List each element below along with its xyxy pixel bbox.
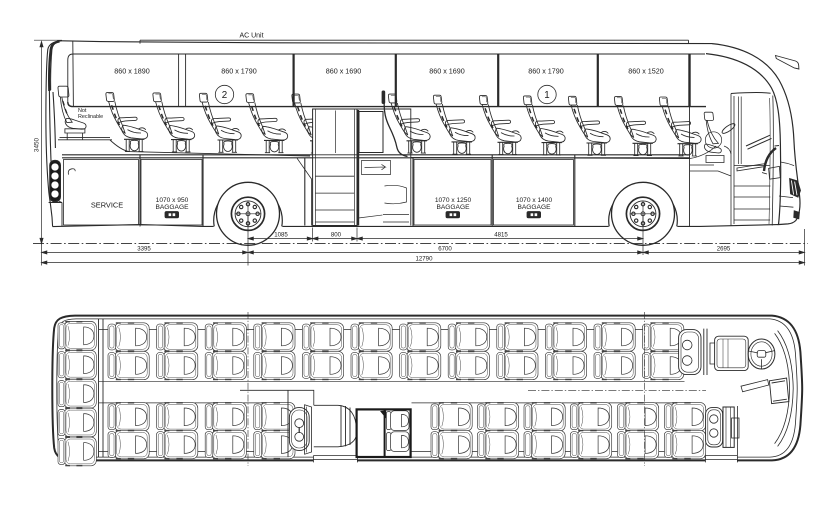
svg-text:860 x 1520: 860 x 1520 [628, 66, 664, 75]
svg-text:3450: 3450 [34, 137, 41, 152]
svg-text:4815: 4815 [494, 232, 508, 239]
svg-text:1070 x 1400: 1070 x 1400 [516, 197, 553, 204]
svg-text:SERVICE: SERVICE [91, 201, 123, 210]
svg-text:Reclinable: Reclinable [78, 114, 103, 120]
svg-text:1070 x 950: 1070 x 950 [156, 197, 189, 204]
svg-text:860 x 1790: 860 x 1790 [221, 66, 257, 75]
svg-text:12790: 12790 [416, 256, 434, 263]
svg-text:860 x 1890: 860 x 1890 [114, 66, 150, 75]
svg-text:6700: 6700 [438, 245, 452, 252]
svg-text:BAGGAGE: BAGGAGE [518, 204, 552, 211]
svg-text:800: 800 [331, 232, 342, 239]
svg-text:BAGGAGE: BAGGAGE [156, 204, 190, 211]
svg-text:1085: 1085 [274, 232, 288, 239]
svg-text:3395: 3395 [137, 245, 151, 252]
svg-text:860 x 1690: 860 x 1690 [429, 66, 465, 75]
svg-text:AC Unit: AC Unit [239, 33, 263, 40]
svg-text:860 x 1690: 860 x 1690 [326, 66, 362, 75]
svg-text:2695: 2695 [717, 245, 731, 252]
svg-text:BAGGAGE: BAGGAGE [437, 204, 471, 211]
svg-text:1: 1 [544, 90, 549, 101]
svg-text:2: 2 [222, 90, 227, 101]
svg-text:1070 x 1250: 1070 x 1250 [435, 197, 472, 204]
svg-text:860 x 1790: 860 x 1790 [528, 66, 564, 75]
